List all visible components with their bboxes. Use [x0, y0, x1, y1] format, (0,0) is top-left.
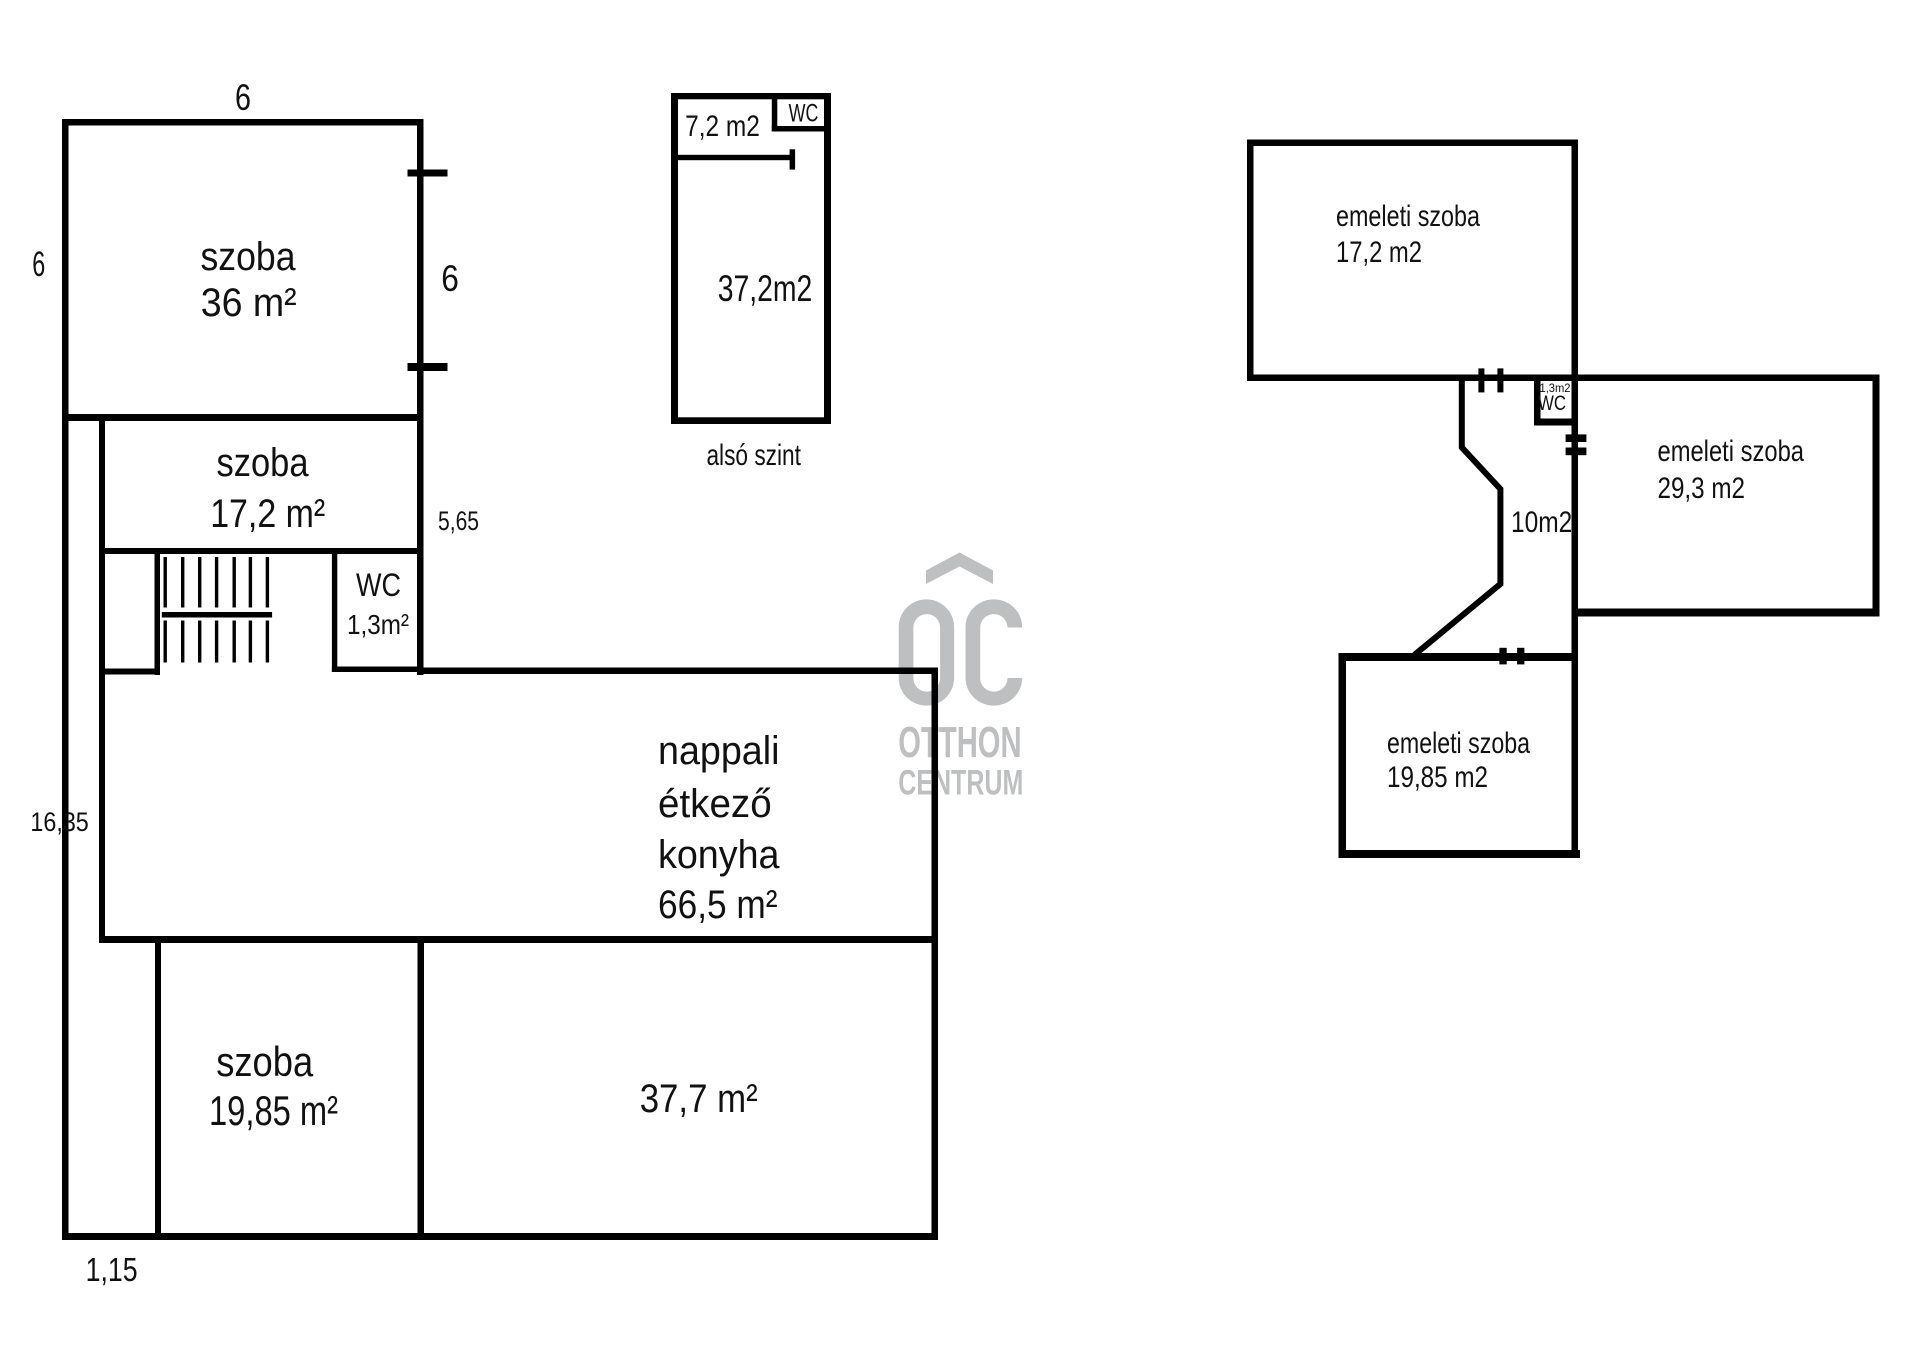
svg-text:17,2 m2: 17,2 m2: [1336, 236, 1422, 269]
svg-text:19,85 m²: 19,85 m²: [209, 1087, 338, 1134]
svg-text:szoba: szoba: [201, 235, 297, 279]
svg-text:szoba: szoba: [217, 441, 310, 485]
svg-text:WC: WC: [1538, 392, 1566, 415]
svg-text:6: 6: [441, 258, 459, 299]
svg-text:19,85 m2: 19,85 m2: [1387, 761, 1488, 794]
svg-text:7,2 m2: 7,2 m2: [685, 110, 760, 143]
svg-text:emeleti szoba: emeleti szoba: [1336, 200, 1480, 233]
svg-text:WC: WC: [789, 100, 819, 128]
svg-text:5,65: 5,65: [438, 506, 479, 536]
svg-text:37,7 m²: 37,7 m²: [640, 1077, 758, 1121]
svg-text:29,3 m2: 29,3 m2: [1658, 472, 1746, 505]
svg-text:37,2m2: 37,2m2: [718, 268, 813, 309]
svg-text:10m2: 10m2: [1511, 506, 1572, 539]
svg-text:emeleti szoba: emeleti szoba: [1387, 727, 1530, 760]
svg-text:6: 6: [235, 77, 251, 118]
svg-text:1,3m²: 1,3m²: [347, 609, 409, 640]
svg-text:CENTRUM: CENTRUM: [898, 764, 1023, 803]
svg-text:emeleti szoba: emeleti szoba: [1658, 435, 1805, 468]
svg-text:WC: WC: [356, 567, 401, 603]
svg-text:étkező: étkező: [658, 782, 772, 826]
svg-text:16,35: 16,35: [30, 807, 88, 837]
svg-text:1,15: 1,15: [86, 1251, 138, 1288]
svg-text:17,2 m²: 17,2 m²: [210, 492, 325, 536]
svg-text:36 m²: 36 m²: [201, 281, 297, 325]
svg-text:6: 6: [32, 245, 45, 284]
svg-text:alsó szint: alsó szint: [706, 439, 801, 472]
svg-text:nappali: nappali: [658, 729, 780, 773]
svg-text:konyha: konyha: [658, 833, 780, 877]
svg-text:OTTHON: OTTHON: [898, 719, 1021, 767]
svg-text:szoba: szoba: [216, 1038, 314, 1085]
svg-text:66,5 m²: 66,5 m²: [658, 883, 778, 927]
